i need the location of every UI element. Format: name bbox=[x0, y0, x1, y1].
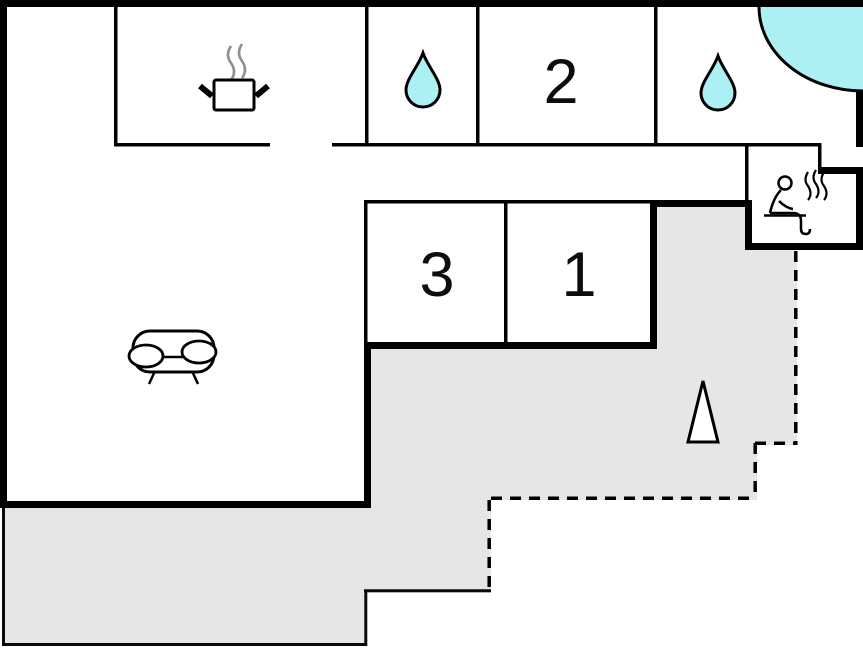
room-label-3: 3 bbox=[419, 240, 454, 310]
terrace-area bbox=[2, 203, 797, 646]
room-label-1: 1 bbox=[561, 240, 596, 310]
cooking-pot-icon bbox=[200, 44, 268, 110]
sofa-icon bbox=[129, 331, 216, 384]
sauna-person-icon bbox=[764, 170, 827, 234]
room-label-2: 2 bbox=[543, 47, 578, 117]
floor-plan: 2 3 1 bbox=[0, 0, 863, 652]
water-drop-icon bbox=[406, 53, 440, 107]
whirlpool-corner-icon bbox=[759, 7, 863, 91]
water-drop-icon bbox=[701, 56, 735, 110]
floor-plan-canvas: 2 3 1 bbox=[0, 0, 863, 652]
